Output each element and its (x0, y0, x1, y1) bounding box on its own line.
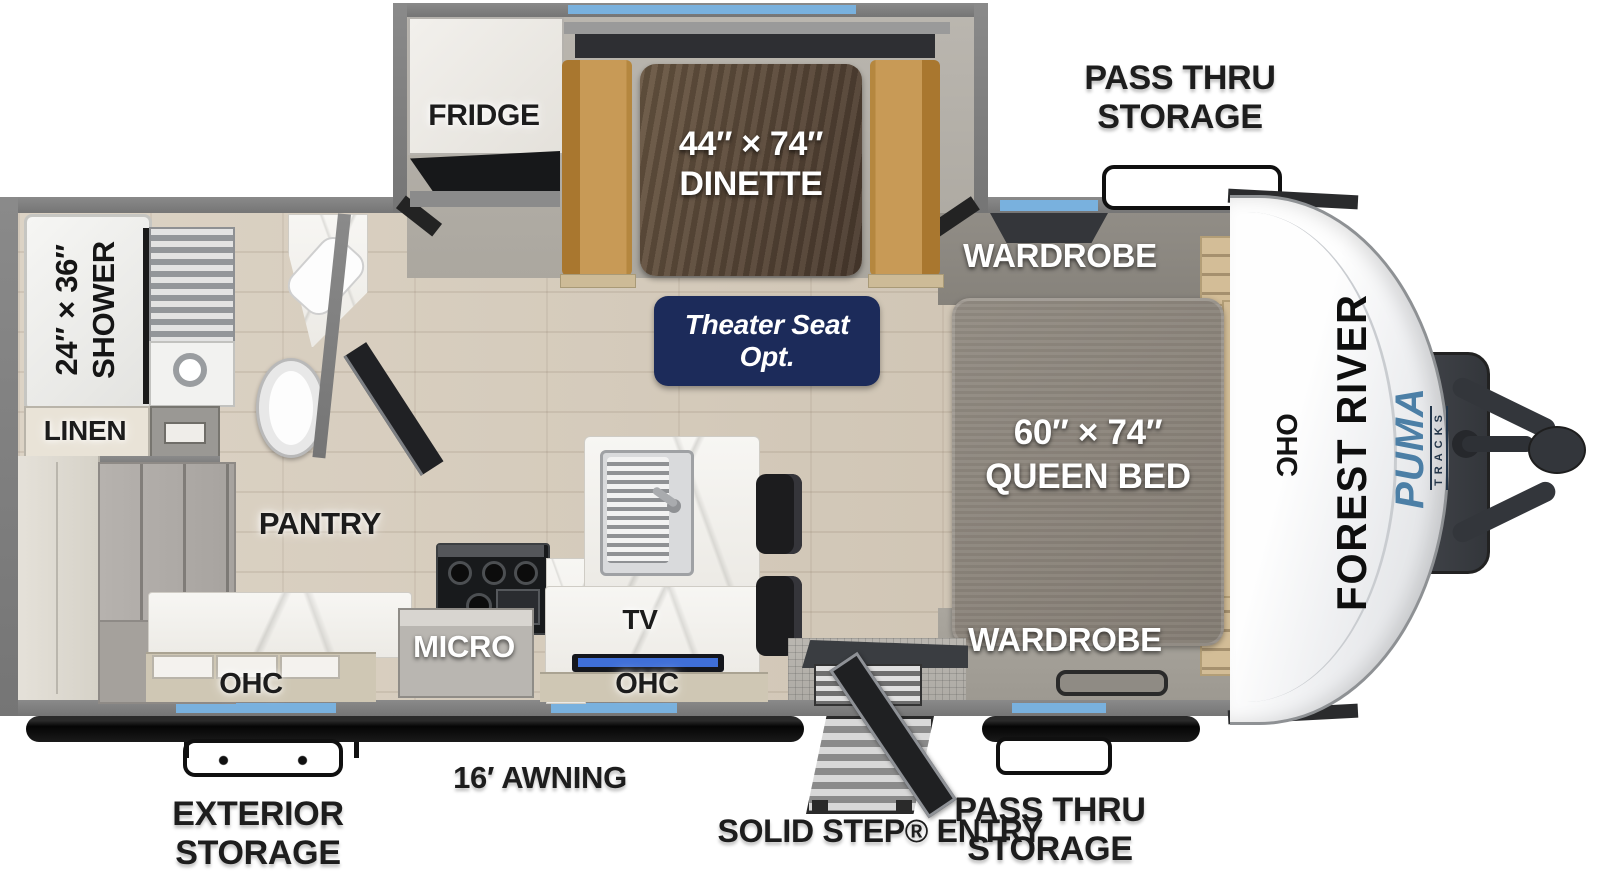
theater-seat-line2: Opt. (740, 341, 795, 373)
rear-tall-cabinet (18, 456, 100, 700)
shower-drain (173, 353, 207, 387)
exterior-storage-line1: EXTERIOR (172, 795, 343, 834)
kitchen-sink (600, 450, 694, 576)
cabinet-divider (56, 462, 58, 694)
fridge-label: FRIDGE (408, 96, 560, 136)
pass-thru-door-bottom (996, 737, 1112, 775)
burner-2 (482, 561, 506, 585)
coupler (1528, 426, 1586, 474)
shower-name-text: SHOWER (85, 241, 122, 379)
puma-logo-text: PUMA (1392, 387, 1428, 509)
dinette-bench-base-right (868, 274, 944, 288)
dinette-name-label: DINETTE (640, 166, 862, 204)
shower-door-lower (149, 341, 235, 407)
wardrobe-bottom-label: WARDROBE (945, 620, 1185, 660)
dinette-bench-left (562, 60, 632, 276)
awning-arm-2 (354, 742, 359, 758)
dinette-bench-right (870, 60, 940, 276)
slideout-right-wall (974, 3, 988, 213)
shower-glass-door (149, 227, 235, 345)
floorplan-canvas: 44″ × 74″ DINETTE FRIDGE 24″ × 36″ SHOWE… (0, 0, 1600, 883)
solid-step-entry-label: SOLID STEP® ENTRY (700, 810, 1060, 852)
exterior-storage-label: EXTERIOR STORAGE (108, 788, 408, 880)
tracks-logo-text: TRACKS (1430, 406, 1449, 490)
burner-1 (448, 561, 472, 585)
top-wall-left (0, 197, 395, 213)
jack-crossbar (1462, 436, 1534, 452)
dinette-size-label: 44″ × 74″ (640, 126, 862, 164)
bar-stool-1 (756, 474, 802, 554)
queen-name-label: QUEEN BED (952, 456, 1224, 498)
ohc-label-left: OHC (196, 666, 306, 704)
shower-label: 24″ × 36″ SHOWER (45, 214, 125, 406)
exterior-storage-line2: STORAGE (175, 834, 340, 873)
burner-3 (514, 561, 538, 585)
pass-thru-top-label: PASS THRU STORAGE (1030, 52, 1330, 144)
pantry-label: PANTRY (240, 503, 400, 545)
awning-label: 16′ AWNING (420, 758, 660, 798)
fridge-counter-base (410, 191, 560, 207)
rear-wall (0, 197, 18, 716)
ohc-label-mid: OHC (592, 666, 702, 704)
forest-river-logo: FOREST RIVER (1328, 291, 1376, 614)
puma-tracks-logo: PUMA TRACKS (1388, 363, 1452, 533)
vanity-drawer (164, 422, 206, 444)
bedroom-window-bottom (1012, 703, 1106, 713)
dinette-valance (560, 22, 950, 34)
kitchen-window-mid (551, 703, 677, 713)
slideout-left-wall (393, 3, 407, 213)
tv-label: TV (600, 602, 680, 638)
stove-back-rail (438, 545, 544, 557)
sink-cover (607, 457, 669, 563)
queen-size-label: 60″ × 74″ (952, 412, 1224, 454)
dinette-bench-base-left (560, 274, 636, 288)
bath-vanity (150, 406, 220, 460)
kitchen-window-left (176, 703, 336, 713)
dinette-window-shade (575, 34, 935, 58)
shower-size-text: 24″ × 36″ (48, 244, 85, 375)
linen-label: LINEN (24, 412, 146, 450)
awning-roller-left (26, 716, 804, 742)
pass-thru-top-line1: PASS THRU (1084, 59, 1275, 98)
pass-thru-top-line2: STORAGE (1097, 98, 1262, 137)
kitchen-counter-left (148, 592, 412, 658)
wardrobe-handle (1056, 670, 1168, 696)
micro-label: MICRO (398, 626, 530, 668)
exterior-storage-door (183, 739, 343, 777)
wardrobe-top-label: WARDROBE (940, 236, 1180, 276)
slideout-window (568, 5, 856, 14)
theater-seat-badge: Theater Seat Opt. (654, 296, 880, 386)
bedroom-window (1000, 200, 1098, 211)
ohc-front-label: OHC (1269, 399, 1301, 491)
theater-seat-line1: Theater Seat (685, 309, 849, 341)
